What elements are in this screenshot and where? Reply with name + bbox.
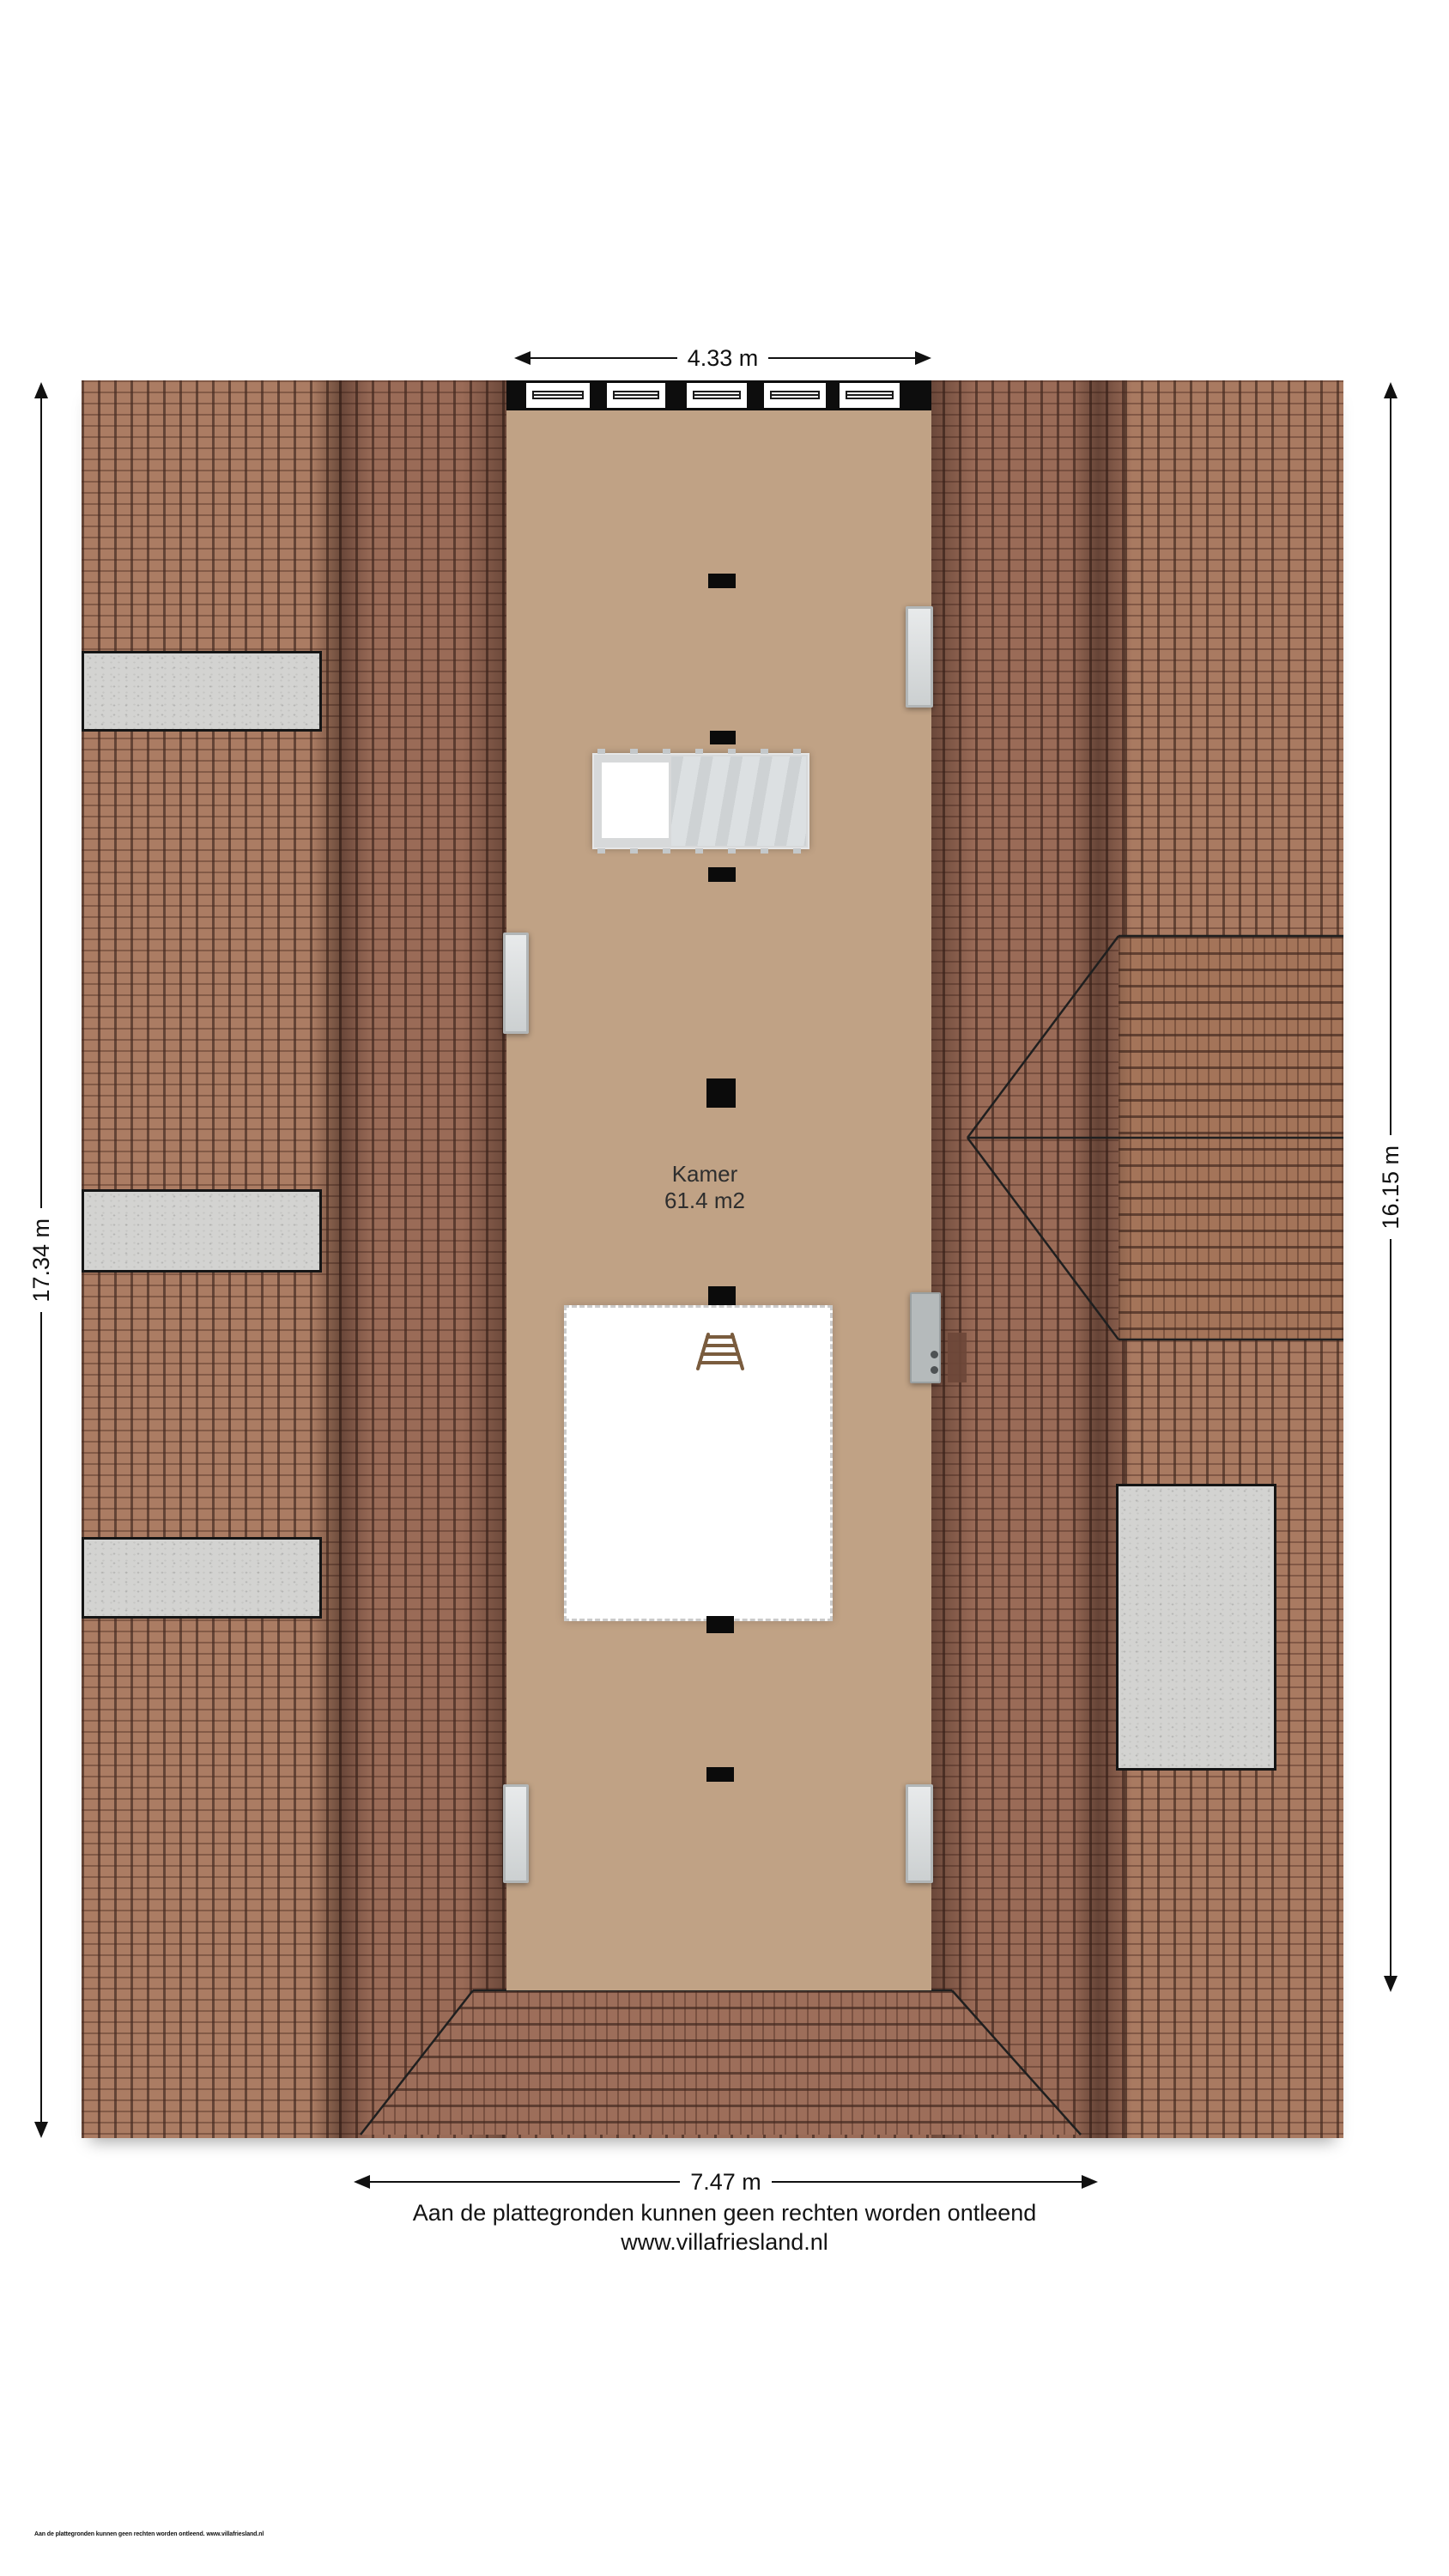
stair-treads xyxy=(671,756,806,846)
disclaimer-text: Aan de plattegronden kunnen geen rechten… xyxy=(0,2200,1449,2227)
hinge-dot xyxy=(931,1366,938,1374)
chimney-patch xyxy=(948,1333,967,1382)
column-marker xyxy=(708,867,736,882)
window xyxy=(526,383,590,408)
roof-window xyxy=(503,933,529,1034)
window-glazing xyxy=(770,391,820,399)
dimension-bottom: 7.47 m xyxy=(354,2169,1098,2195)
loft-ladder-icon xyxy=(691,1331,749,1372)
stair-landing xyxy=(602,762,669,838)
window-glazing xyxy=(613,391,659,399)
front-wall xyxy=(506,380,931,410)
arrow-up-icon xyxy=(34,382,48,398)
arrow-left-icon xyxy=(354,2175,370,2189)
dimension-right-label: 16.15 m xyxy=(1378,1135,1404,1240)
window-glazing xyxy=(846,391,894,399)
room-area: 61.4 m2 xyxy=(619,1188,791,1214)
arrow-left-icon xyxy=(514,351,530,365)
column-marker xyxy=(708,574,736,588)
window xyxy=(840,383,900,408)
wall-stub xyxy=(710,731,736,744)
dimension-top: 4.33 m xyxy=(514,345,931,371)
window xyxy=(687,383,747,408)
column-marker xyxy=(706,1767,734,1782)
room-name: Kamer xyxy=(619,1161,791,1188)
dimension-line xyxy=(772,2181,1082,2183)
room-label: Kamer 61.4 m2 xyxy=(619,1161,791,1214)
arrow-up-icon xyxy=(1384,382,1397,398)
dimension-line xyxy=(1390,398,1391,1135)
website-text: www.villafriesland.nl xyxy=(0,2229,1449,2256)
roof-window xyxy=(906,606,933,708)
arrow-down-icon xyxy=(1384,1976,1397,1992)
window xyxy=(764,383,826,408)
staircase xyxy=(592,753,809,849)
arrow-down-icon xyxy=(34,2122,48,2138)
floor-plan-page: Kamer 61.4 m2 4.33 m 7.47 m 17.34 m 16.1… xyxy=(0,0,1449,2576)
dimension-line xyxy=(370,2181,680,2183)
roof-hatch-window xyxy=(910,1292,941,1383)
arrow-right-icon xyxy=(1082,2175,1098,2189)
dimension-line xyxy=(768,357,915,359)
window-glazing xyxy=(693,391,741,399)
dimension-line xyxy=(40,398,42,1208)
fineprint-text: Aan de plattegronden kunnen geen rechten… xyxy=(34,2531,264,2537)
dimension-right: 16.15 m xyxy=(1375,382,1406,1992)
column-marker xyxy=(706,1616,734,1633)
dimension-top-label: 4.33 m xyxy=(677,345,769,372)
dimension-line xyxy=(40,1312,42,2122)
dimension-bottom-label: 7.47 m xyxy=(680,2169,772,2196)
hinge-dot xyxy=(931,1351,938,1358)
window xyxy=(607,383,665,408)
column-marker xyxy=(708,1286,736,1305)
arrow-right-icon xyxy=(915,351,931,365)
dimension-line xyxy=(1390,1239,1391,1976)
roof-window xyxy=(503,1784,529,1883)
column-marker xyxy=(706,1078,736,1108)
dimension-left-label: 17.34 m xyxy=(28,1208,55,1313)
dimension-left: 17.34 m xyxy=(26,382,57,2138)
roof-window xyxy=(906,1784,933,1883)
dimension-line xyxy=(530,357,677,359)
window-glazing xyxy=(532,391,584,399)
